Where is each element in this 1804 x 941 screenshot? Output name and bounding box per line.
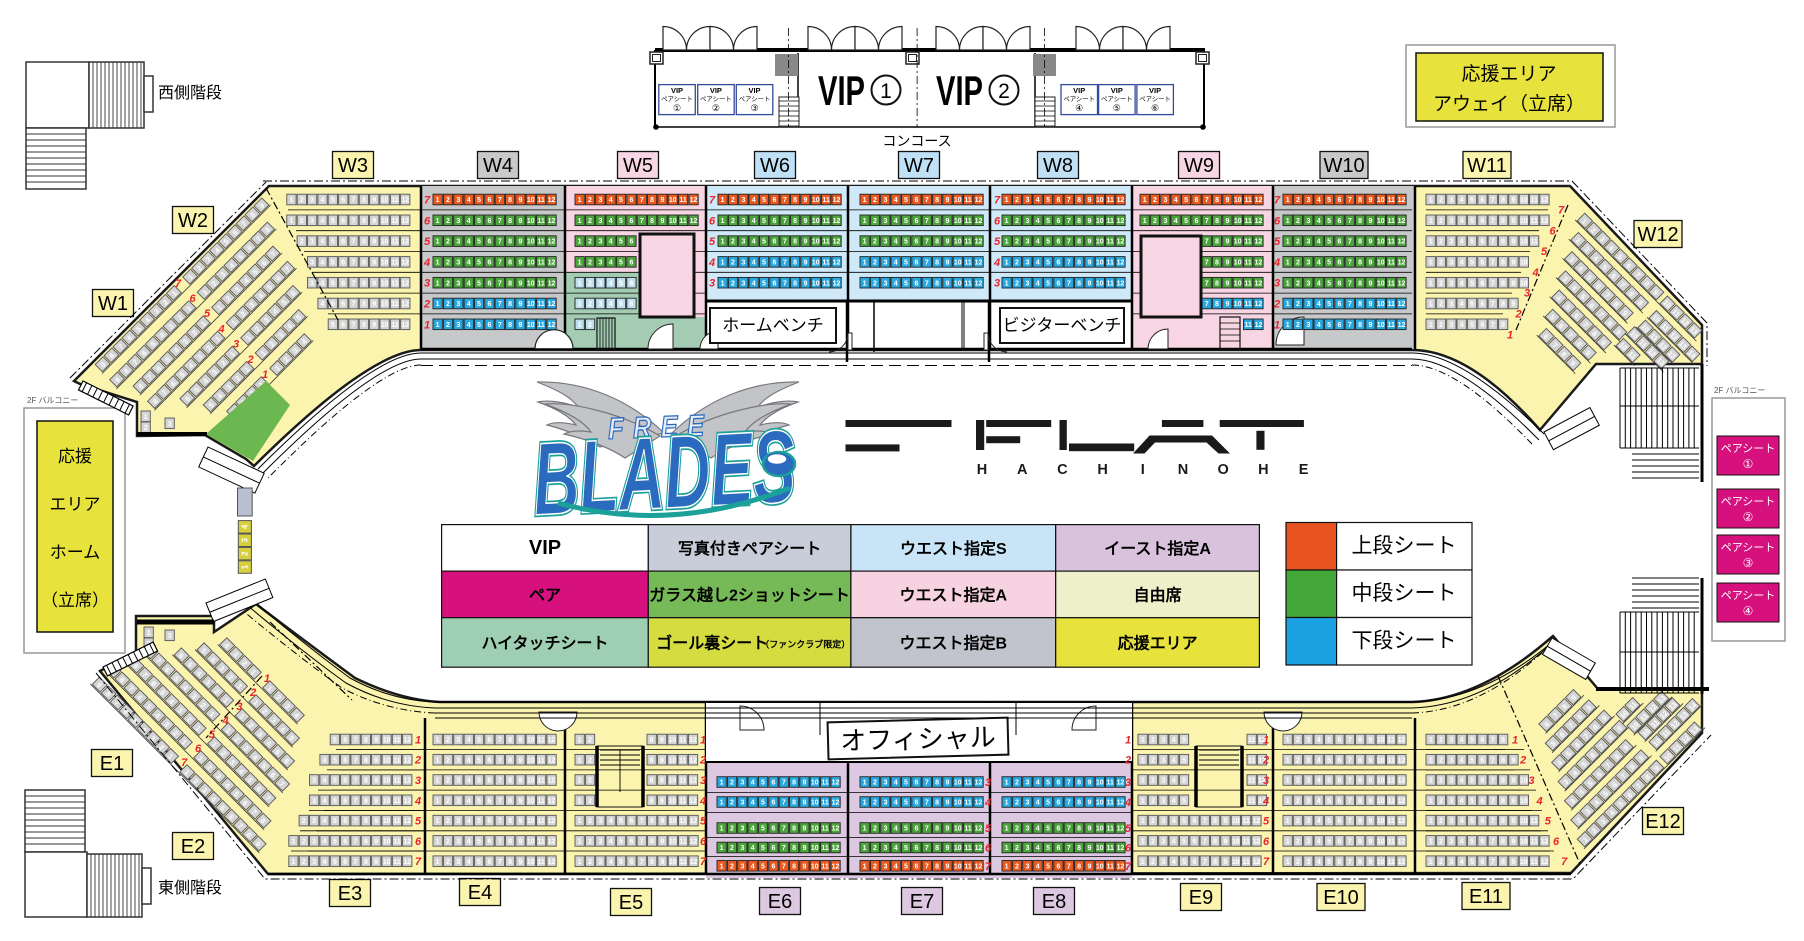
svg-text:1: 1: [1005, 845, 1009, 852]
svg-text:6: 6: [1480, 757, 1484, 764]
svg-text:9: 9: [518, 798, 522, 805]
svg-text:5: 5: [477, 239, 481, 246]
svg-text:2: 2: [302, 859, 306, 866]
svg-text:6: 6: [487, 757, 491, 764]
svg-text:⑤: ⑤: [1113, 103, 1121, 113]
svg-text:5: 5: [619, 197, 623, 204]
svg-text:9: 9: [945, 218, 949, 225]
svg-text:8: 8: [508, 197, 512, 204]
svg-text:5: 5: [1046, 280, 1050, 287]
svg-text:3: 3: [456, 280, 460, 287]
svg-text:11: 11: [822, 239, 830, 246]
svg-text:7: 7: [354, 778, 358, 785]
svg-text:3: 3: [1306, 859, 1310, 866]
svg-text:5: 5: [904, 780, 908, 787]
svg-text:4: 4: [1460, 218, 1464, 225]
svg-text:8: 8: [650, 818, 654, 825]
svg-text:9: 9: [1088, 239, 1092, 246]
svg-text:7: 7: [640, 859, 644, 866]
svg-text:5: 5: [1184, 197, 1188, 204]
svg-text:11: 11: [391, 239, 399, 246]
svg-text:5: 5: [1470, 859, 1474, 866]
svg-text:10: 10: [527, 859, 535, 866]
svg-text:7: 7: [498, 218, 502, 225]
svg-text:7: 7: [1205, 239, 1209, 246]
svg-text:4: 4: [467, 778, 471, 785]
svg-text:10: 10: [383, 757, 391, 764]
svg-text:9: 9: [1512, 757, 1516, 764]
svg-text:2: 2: [1296, 757, 1300, 764]
svg-text:3: 3: [598, 218, 602, 225]
svg-text:10: 10: [811, 826, 819, 833]
svg-text:9: 9: [372, 239, 376, 246]
svg-text:6: 6: [343, 737, 347, 744]
svg-text:8: 8: [362, 218, 366, 225]
svg-text:4: 4: [323, 859, 327, 866]
svg-text:2: 2: [446, 737, 450, 744]
svg-text:2: 2: [446, 280, 450, 287]
svg-text:6: 6: [700, 836, 707, 848]
svg-text:6: 6: [341, 218, 345, 225]
svg-text:2: 2: [1296, 778, 1300, 785]
svg-text:2: 2: [302, 818, 306, 825]
svg-text:4: 4: [1036, 197, 1040, 204]
svg-text:7: 7: [354, 818, 358, 825]
svg-text:8: 8: [362, 239, 366, 246]
svg-text:11: 11: [537, 280, 545, 287]
svg-text:9: 9: [1088, 863, 1092, 870]
svg-text:ペアシート: ペアシート: [1139, 95, 1171, 103]
svg-text:3: 3: [1025, 863, 1029, 870]
svg-text:2: 2: [1296, 260, 1300, 267]
svg-text:1: 1: [578, 301, 582, 308]
svg-text:10: 10: [954, 826, 962, 833]
svg-text:3: 3: [883, 826, 887, 833]
svg-text:8: 8: [1358, 197, 1362, 204]
svg-text:7: 7: [1067, 260, 1071, 267]
svg-text:3: 3: [1449, 818, 1453, 825]
svg-text:7: 7: [424, 195, 431, 207]
svg-text:6: 6: [914, 218, 918, 225]
svg-text:3: 3: [994, 278, 1000, 290]
svg-text:3: 3: [310, 280, 314, 287]
svg-text:7: 7: [1348, 798, 1352, 805]
svg-text:9: 9: [802, 780, 806, 787]
svg-text:8: 8: [1077, 280, 1081, 287]
svg-text:4: 4: [894, 780, 898, 787]
svg-text:5: 5: [477, 778, 481, 785]
svg-text:6: 6: [415, 836, 422, 848]
svg-text:7: 7: [709, 195, 716, 207]
svg-text:5: 5: [331, 280, 335, 287]
svg-text:1: 1: [1286, 818, 1290, 825]
svg-text:6: 6: [629, 197, 633, 204]
svg-text:8: 8: [1213, 859, 1217, 866]
svg-text:1: 1: [578, 757, 582, 764]
svg-text:3: 3: [1025, 280, 1029, 287]
svg-text:11: 11: [1387, 301, 1395, 308]
svg-text:12: 12: [1117, 197, 1125, 204]
svg-text:6: 6: [1337, 260, 1341, 267]
svg-text:7: 7: [925, 800, 929, 807]
svg-text:N: N: [1178, 462, 1188, 478]
svg-text:6: 6: [772, 197, 776, 204]
svg-text:②: ②: [1743, 510, 1754, 524]
svg-text:8: 8: [364, 798, 368, 805]
svg-text:10: 10: [1377, 737, 1385, 744]
svg-text:8: 8: [1501, 839, 1505, 846]
svg-text:6: 6: [771, 800, 775, 807]
svg-text:1: 1: [863, 863, 867, 870]
svg-text:10: 10: [1377, 239, 1385, 246]
svg-text:3: 3: [598, 280, 602, 287]
svg-text:E8: E8: [1042, 891, 1066, 913]
svg-text:W2: W2: [178, 210, 208, 232]
svg-text:10: 10: [383, 818, 391, 825]
svg-text:12: 12: [690, 218, 698, 225]
svg-text:7: 7: [1348, 778, 1352, 785]
svg-text:1: 1: [863, 826, 867, 833]
svg-text:イースト指定A: イースト指定A: [1104, 539, 1211, 558]
svg-text:6: 6: [1480, 218, 1484, 225]
svg-text:7: 7: [1067, 239, 1071, 246]
svg-text:10: 10: [1520, 280, 1528, 287]
svg-text:1: 1: [1429, 757, 1433, 764]
svg-text:8: 8: [1077, 845, 1081, 852]
svg-text:ゴール裏シート: ゴール裏シート: [656, 634, 768, 653]
svg-text:4: 4: [1036, 826, 1040, 833]
svg-text:11: 11: [537, 757, 545, 764]
svg-text:7: 7: [782, 845, 786, 852]
svg-text:9: 9: [1369, 798, 1373, 805]
svg-text:4: 4: [751, 863, 755, 870]
svg-text:8: 8: [1501, 301, 1505, 308]
svg-text:8: 8: [1213, 818, 1217, 825]
svg-text:1: 1: [1143, 197, 1147, 204]
svg-text:7: 7: [1348, 301, 1352, 308]
svg-text:5: 5: [761, 826, 765, 833]
svg-text:8: 8: [1358, 737, 1362, 744]
svg-text:12: 12: [403, 737, 411, 744]
svg-text:9: 9: [945, 260, 949, 267]
svg-text:5: 5: [762, 260, 766, 267]
svg-text:2: 2: [1124, 755, 1131, 767]
svg-text:11: 11: [537, 218, 545, 225]
svg-text:12: 12: [975, 218, 983, 225]
svg-text:6: 6: [1480, 778, 1484, 785]
svg-text:6: 6: [1480, 239, 1484, 246]
svg-text:9: 9: [518, 301, 522, 308]
svg-text:6: 6: [1194, 197, 1198, 204]
svg-text:11: 11: [679, 798, 687, 805]
svg-text:5: 5: [1274, 236, 1281, 248]
svg-text:9: 9: [802, 845, 806, 852]
svg-text:2: 2: [302, 839, 306, 846]
svg-text:8: 8: [1501, 218, 1505, 225]
svg-text:9: 9: [1369, 280, 1373, 287]
svg-text:12: 12: [1541, 197, 1549, 204]
svg-text:5: 5: [700, 816, 707, 828]
svg-text:11: 11: [1530, 218, 1538, 225]
svg-text:1: 1: [262, 369, 268, 381]
svg-text:12: 12: [401, 239, 409, 246]
svg-text:3: 3: [598, 260, 602, 267]
svg-text:3: 3: [883, 260, 887, 267]
svg-text:（立席）: （立席）: [41, 591, 109, 610]
svg-text:2: 2: [1015, 218, 1019, 225]
svg-text:3: 3: [1161, 778, 1165, 785]
svg-text:11: 11: [1387, 197, 1395, 204]
svg-text:3: 3: [1306, 322, 1310, 329]
svg-text:1: 1: [578, 239, 582, 246]
svg-text:E6: E6: [768, 891, 792, 913]
svg-text:11: 11: [1242, 818, 1250, 825]
svg-text:2: 2: [1015, 280, 1019, 287]
svg-text:6: 6: [994, 215, 1001, 227]
svg-text:11: 11: [1106, 800, 1114, 807]
svg-text:12: 12: [1398, 218, 1406, 225]
svg-text:3: 3: [883, 780, 887, 787]
svg-text:3: 3: [456, 818, 460, 825]
svg-text:9: 9: [1369, 260, 1373, 267]
svg-text:H: H: [977, 462, 987, 478]
svg-text:3: 3: [1161, 859, 1165, 866]
svg-text:3: 3: [1306, 197, 1310, 204]
svg-text:9: 9: [1369, 322, 1373, 329]
svg-text:10: 10: [1096, 280, 1104, 287]
svg-text:2: 2: [1151, 859, 1155, 866]
svg-text:9: 9: [1088, 826, 1092, 833]
svg-text:ホーム: ホーム: [50, 543, 101, 562]
svg-text:5: 5: [477, 839, 481, 846]
svg-text:10: 10: [527, 757, 535, 764]
svg-text:6: 6: [487, 839, 491, 846]
svg-text:3: 3: [883, 800, 887, 807]
svg-text:1: 1: [291, 859, 295, 866]
svg-text:11: 11: [964, 845, 972, 852]
svg-text:H: H: [1097, 462, 1107, 478]
svg-text:10: 10: [669, 218, 677, 225]
svg-text:9: 9: [660, 798, 664, 805]
svg-text:3: 3: [883, 197, 887, 204]
svg-text:4: 4: [1317, 798, 1321, 805]
svg-text:6: 6: [1194, 218, 1198, 225]
svg-text:8: 8: [935, 800, 939, 807]
svg-text:3: 3: [1263, 775, 1269, 787]
svg-text:8: 8: [508, 818, 512, 825]
svg-text:6: 6: [343, 859, 347, 866]
svg-text:W6: W6: [760, 155, 790, 177]
svg-text:2: 2: [1015, 780, 1019, 787]
svg-text:12: 12: [1398, 260, 1406, 267]
svg-text:10: 10: [527, 218, 535, 225]
svg-text:3: 3: [456, 322, 460, 329]
svg-text:8: 8: [1213, 839, 1217, 846]
svg-text:6: 6: [914, 863, 918, 870]
svg-text:9: 9: [945, 826, 949, 833]
svg-text:4: 4: [609, 218, 613, 225]
svg-text:1: 1: [1286, 280, 1290, 287]
svg-text:11: 11: [1106, 260, 1114, 267]
svg-text:8: 8: [508, 839, 512, 846]
svg-text:3: 3: [740, 826, 744, 833]
svg-text:3: 3: [1161, 798, 1165, 805]
svg-text:8: 8: [1215, 260, 1219, 267]
svg-text:2: 2: [1153, 197, 1157, 204]
svg-text:7: 7: [640, 839, 644, 846]
svg-text:2: 2: [1439, 280, 1443, 287]
svg-text:2: 2: [588, 322, 592, 329]
svg-text:8: 8: [1077, 197, 1081, 204]
svg-text:5: 5: [904, 826, 908, 833]
svg-text:12: 12: [975, 780, 983, 787]
svg-text:4: 4: [752, 197, 756, 204]
svg-text:（ファンクラブ限定）: （ファンクラブ限定）: [760, 639, 850, 650]
svg-text:1: 1: [1274, 319, 1280, 331]
svg-text:8: 8: [508, 322, 512, 329]
svg-text:4: 4: [894, 826, 898, 833]
svg-text:9: 9: [1088, 197, 1092, 204]
svg-text:7: 7: [1348, 280, 1352, 287]
svg-text:9: 9: [1512, 839, 1516, 846]
svg-text:2: 2: [1015, 800, 1019, 807]
svg-text:7: 7: [352, 322, 356, 329]
svg-text:6: 6: [487, 818, 491, 825]
svg-text:5: 5: [1327, 197, 1331, 204]
svg-text:7: 7: [498, 301, 502, 308]
svg-text:3: 3: [741, 239, 745, 246]
svg-text:6: 6: [985, 843, 992, 855]
svg-text:8: 8: [1358, 218, 1362, 225]
svg-text:10: 10: [1520, 260, 1528, 267]
svg-text:9: 9: [518, 218, 522, 225]
svg-text:11: 11: [1387, 818, 1395, 825]
svg-text:11: 11: [391, 301, 399, 308]
svg-text:8: 8: [364, 778, 368, 785]
svg-text:1: 1: [436, 260, 440, 267]
svg-text:5: 5: [204, 308, 211, 320]
svg-text:1: 1: [1005, 197, 1009, 204]
svg-text:1: 1: [264, 673, 270, 685]
svg-text:9: 9: [660, 757, 664, 764]
svg-text:10: 10: [1096, 218, 1104, 225]
svg-text:2: 2: [873, 780, 877, 787]
svg-text:11: 11: [1106, 826, 1114, 833]
svg-text:7: 7: [985, 861, 992, 873]
svg-text:5: 5: [1125, 823, 1132, 835]
svg-text:4: 4: [609, 239, 613, 246]
svg-text:2: 2: [588, 301, 592, 308]
svg-text:2: 2: [1439, 218, 1443, 225]
svg-text:1: 1: [436, 839, 440, 846]
svg-text:8: 8: [1077, 826, 1081, 833]
svg-text:2: 2: [873, 800, 877, 807]
svg-text:4: 4: [1317, 280, 1321, 287]
svg-text:5: 5: [1046, 800, 1050, 807]
svg-text:4: 4: [323, 798, 327, 805]
svg-text:12: 12: [975, 197, 983, 204]
svg-text:10: 10: [1234, 239, 1242, 246]
svg-text:1: 1: [1429, 859, 1433, 866]
svg-text:②: ②: [712, 103, 720, 113]
svg-text:1: 1: [720, 863, 724, 870]
svg-text:1: 1: [863, 218, 867, 225]
svg-text:12: 12: [1117, 218, 1125, 225]
svg-text:10: 10: [1520, 197, 1528, 204]
svg-text:3: 3: [233, 339, 239, 351]
svg-text:2: 2: [731, 280, 735, 287]
svg-text:6: 6: [1056, 845, 1060, 852]
svg-text:E5: E5: [619, 892, 643, 914]
svg-text:5: 5: [761, 800, 765, 807]
svg-text:8: 8: [935, 826, 939, 833]
svg-text:6: 6: [487, 218, 491, 225]
svg-text:12: 12: [1398, 778, 1406, 785]
svg-text:8: 8: [793, 197, 797, 204]
svg-text:5: 5: [333, 757, 337, 764]
svg-text:5: 5: [1327, 260, 1331, 267]
svg-text:6: 6: [914, 260, 918, 267]
svg-text:12: 12: [690, 859, 698, 866]
svg-text:8: 8: [1358, 239, 1362, 246]
svg-text:8: 8: [935, 197, 939, 204]
svg-text:5: 5: [904, 218, 908, 225]
svg-text:3: 3: [1274, 278, 1280, 290]
svg-text:4: 4: [751, 780, 755, 787]
svg-text:9: 9: [1088, 780, 1092, 787]
svg-text:1: 1: [1429, 818, 1433, 825]
svg-text:10: 10: [527, 737, 535, 744]
svg-text:5: 5: [415, 816, 422, 828]
svg-text:1: 1: [1005, 863, 1009, 870]
svg-text:8: 8: [935, 218, 939, 225]
svg-text:8: 8: [1215, 301, 1219, 308]
svg-text:4: 4: [321, 197, 325, 204]
svg-text:12: 12: [1398, 197, 1406, 204]
svg-text:2: 2: [1296, 859, 1300, 866]
svg-text:7: 7: [925, 826, 929, 833]
svg-text:5: 5: [1182, 859, 1186, 866]
svg-text:2: 2: [446, 260, 450, 267]
svg-text:5: 5: [209, 729, 216, 741]
svg-text:4: 4: [467, 322, 471, 329]
svg-text:9: 9: [518, 197, 522, 204]
svg-text:1: 1: [147, 630, 151, 637]
svg-text:4: 4: [1531, 267, 1538, 279]
svg-text:8: 8: [650, 798, 654, 805]
svg-text:6: 6: [487, 280, 491, 287]
svg-text:10: 10: [811, 780, 819, 787]
svg-text:7: 7: [352, 197, 356, 204]
svg-text:8: 8: [1358, 859, 1362, 866]
svg-text:VIP: VIP: [529, 537, 561, 559]
svg-text:10: 10: [669, 859, 677, 866]
svg-text:5: 5: [619, 839, 623, 846]
svg-text:10: 10: [381, 197, 389, 204]
svg-text:4: 4: [1460, 737, 1464, 744]
svg-text:12: 12: [548, 859, 556, 866]
svg-text:5: 5: [1470, 839, 1474, 846]
svg-text:4: 4: [609, 818, 613, 825]
svg-text:10: 10: [954, 800, 962, 807]
svg-text:10: 10: [1520, 778, 1528, 785]
svg-text:10: 10: [1377, 260, 1385, 267]
svg-text:応援エリア: 応援エリア: [1461, 63, 1556, 85]
svg-text:7: 7: [1205, 260, 1209, 267]
svg-text:4: 4: [894, 800, 898, 807]
svg-text:11: 11: [964, 239, 972, 246]
svg-text:9: 9: [518, 778, 522, 785]
